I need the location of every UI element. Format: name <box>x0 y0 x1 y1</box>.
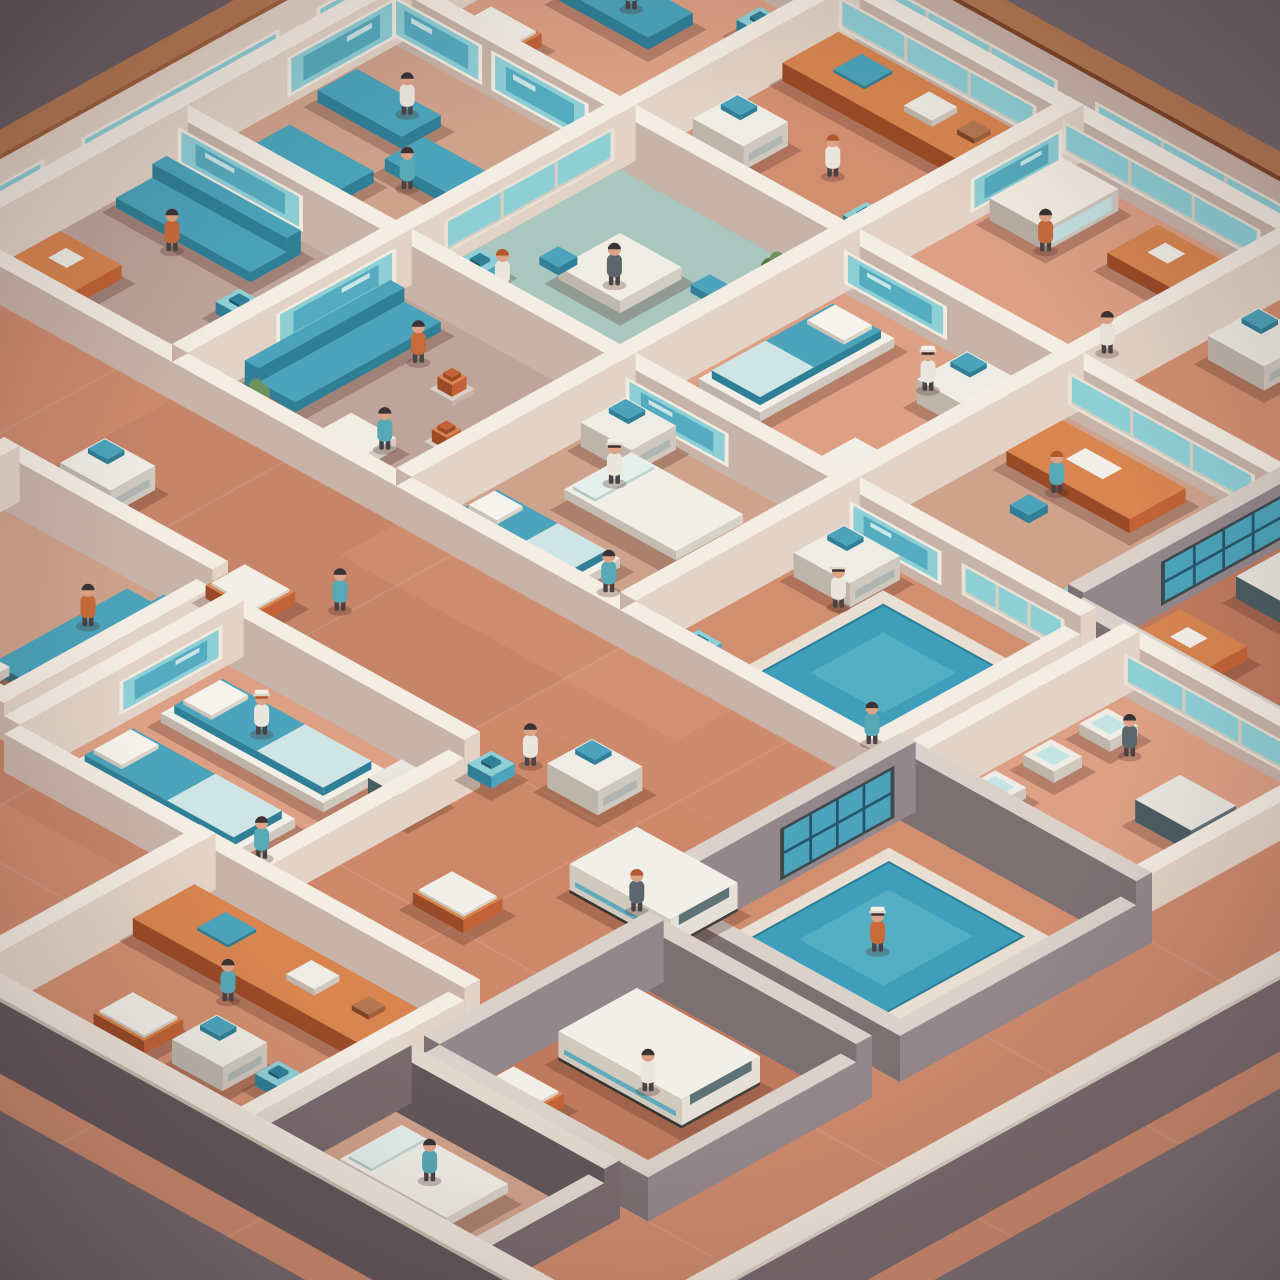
scene-canvas <box>0 0 1280 1280</box>
vignette <box>0 0 1280 1280</box>
isometric-facility-illustration <box>0 0 1280 1280</box>
